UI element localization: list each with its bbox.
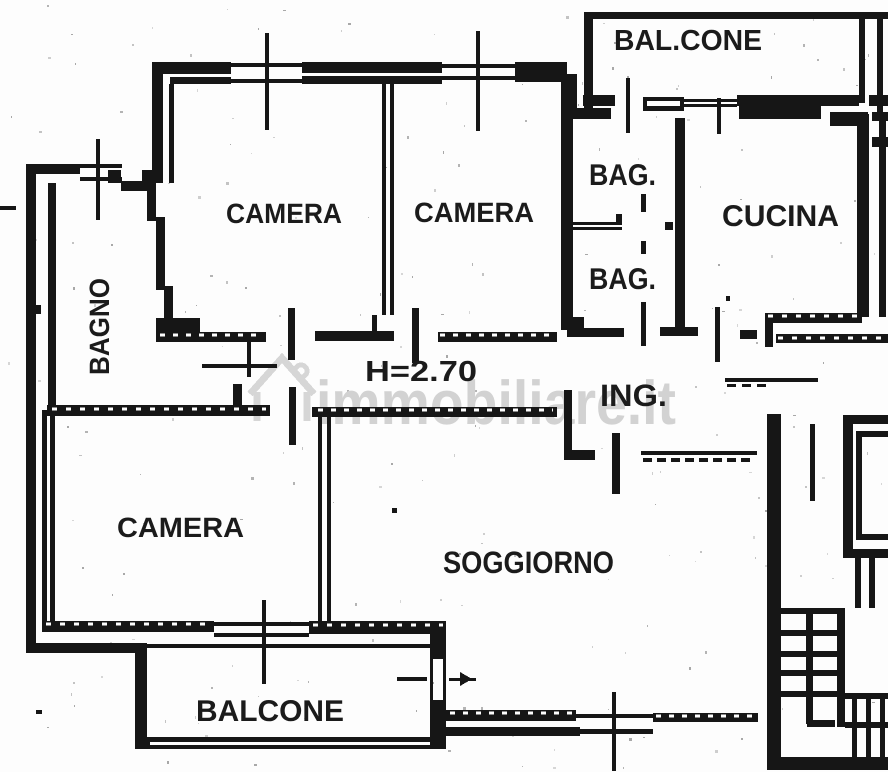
svg-text:BAL.CONE: BAL.CONE <box>614 25 762 57</box>
svg-text:BAGNO: BAGNO <box>84 278 115 375</box>
svg-text:BAG.: BAG. <box>589 159 656 192</box>
svg-text:BAG.: BAG. <box>589 263 656 296</box>
svg-text:CUCINA: CUCINA <box>722 200 839 233</box>
svg-text:BALCONE: BALCONE <box>196 695 344 728</box>
svg-text:ING.: ING. <box>600 378 667 413</box>
svg-text:CAMERA: CAMERA <box>226 198 342 229</box>
svg-text:CAMERA: CAMERA <box>414 197 534 228</box>
svg-text:CAMERA: CAMERA <box>117 512 244 543</box>
svg-text:SOGGIORNO: SOGGIORNO <box>443 545 614 580</box>
svg-text:H=2.70: H=2.70 <box>365 356 477 388</box>
